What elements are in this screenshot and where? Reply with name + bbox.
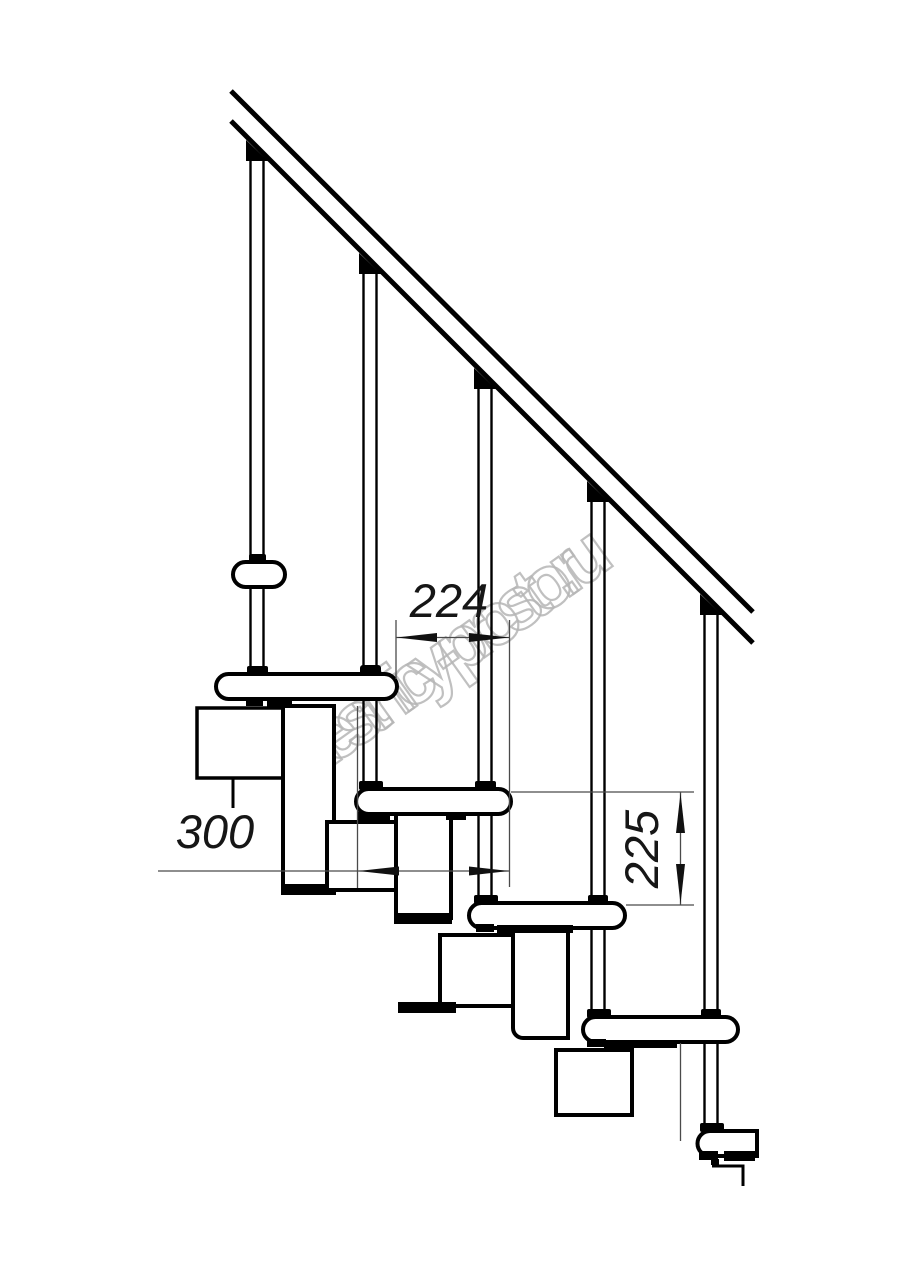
dimension-label-225: 225 bbox=[615, 809, 668, 889]
lower-structure-edge bbox=[712, 1166, 743, 1186]
fitting-baluster5-tread4 bbox=[701, 1009, 721, 1018]
module-box-b bbox=[327, 822, 404, 890]
fitting-baluster3-tread2 bbox=[475, 781, 496, 790]
mount-tab-tread5-b bbox=[711, 1159, 719, 1165]
mount-tab-tread4-a bbox=[587, 1039, 606, 1047]
arrowhead-down bbox=[676, 864, 685, 904]
fitting-baluster2-tread1 bbox=[360, 665, 381, 675]
watermark-text: lestnicy-prosto.ru bbox=[290, 511, 622, 781]
module-box-c bbox=[440, 935, 517, 1006]
dimension-label-300: 300 bbox=[176, 805, 254, 858]
module-cap-3 bbox=[398, 1002, 456, 1013]
fitting-baluster3-tread3 bbox=[474, 895, 498, 904]
fitting-baluster2-tread2 bbox=[359, 781, 383, 790]
fitting-baluster5-tread5 bbox=[700, 1123, 724, 1132]
fitting-baluster1-tread1 bbox=[247, 666, 268, 676]
mount-bar-tread5 bbox=[724, 1151, 755, 1161]
baluster-1 bbox=[246, 140, 268, 675]
arrowhead-up bbox=[676, 793, 685, 833]
tread-1 bbox=[216, 674, 397, 699]
arrowhead-right bbox=[469, 867, 509, 876]
tread-4 bbox=[583, 1017, 738, 1042]
mount-bar-tread3 bbox=[497, 925, 573, 933]
baluster-5 bbox=[700, 594, 722, 1131]
mount-tab-tread1-b bbox=[267, 697, 292, 707]
module-tube-3 bbox=[513, 926, 568, 1038]
fitting-baluster4-tread3 bbox=[588, 895, 608, 904]
module-cap-2 bbox=[394, 913, 452, 924]
mount-tab-tread2-a bbox=[358, 812, 390, 820]
mount-tab-tread2-b bbox=[446, 812, 466, 820]
module-box-d bbox=[556, 1050, 632, 1115]
module-tube-2 bbox=[396, 812, 451, 918]
mount-tab-tread3-a bbox=[476, 924, 494, 932]
tread-0 bbox=[233, 562, 285, 587]
spine-modules bbox=[197, 706, 743, 1186]
module-box-a bbox=[197, 708, 285, 778]
staircase-drawing-canvas: lestnicy-prosto.ru bbox=[0, 0, 914, 1280]
mount-tab-tread5-a bbox=[699, 1151, 718, 1160]
tread-2 bbox=[356, 789, 511, 814]
mount-tab-tread1-a bbox=[246, 697, 263, 706]
baluster-4 bbox=[587, 481, 609, 1017]
dimension-label-224: 224 bbox=[409, 574, 488, 627]
fitting-baluster1-tread0 bbox=[249, 554, 266, 562]
staircase-drawing: lestnicy-prosto.ru bbox=[0, 0, 914, 1280]
mount-bar-tread4 bbox=[604, 1040, 677, 1048]
fitting-baluster4-tread4 bbox=[587, 1009, 611, 1018]
